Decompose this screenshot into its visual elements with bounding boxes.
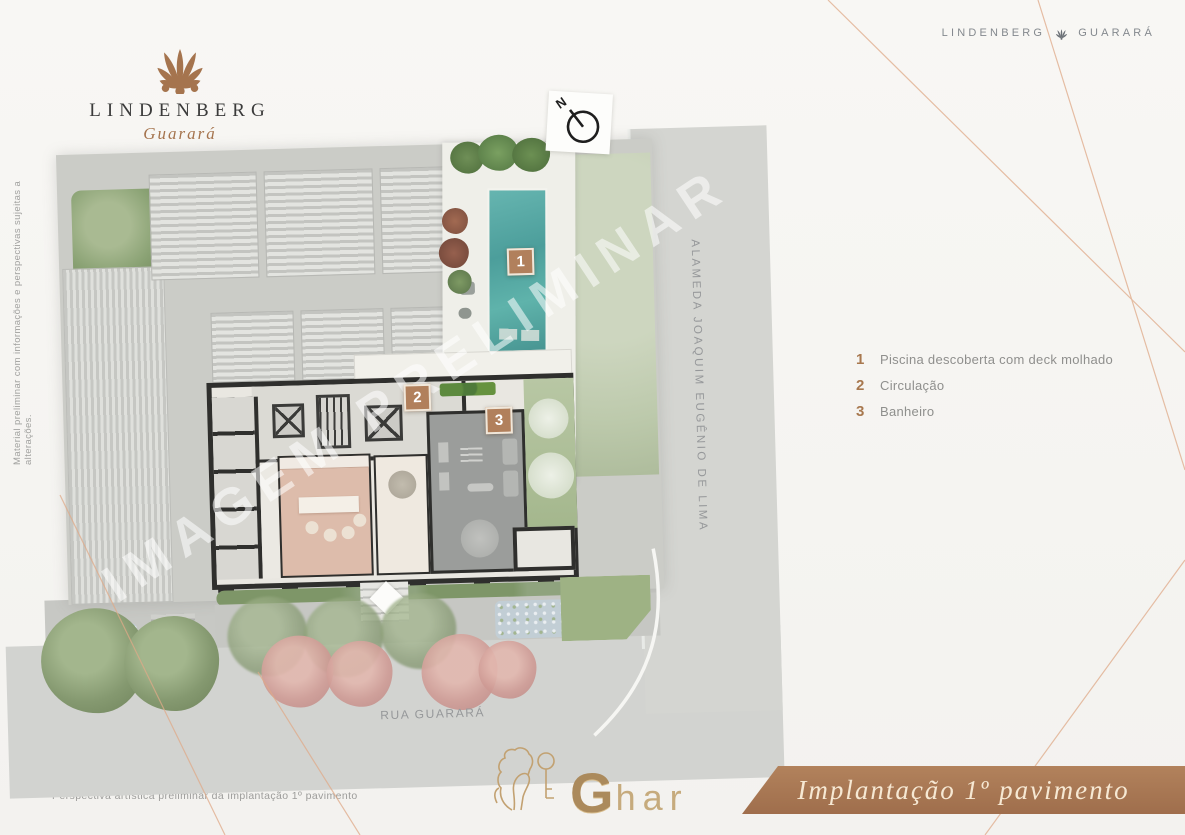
- developer-logo: LINDENBERG Guarará: [70, 36, 290, 144]
- site-plan: ALAMEDA JOAQUIM EUGÊNIO DE LIMA RUA GUAR…: [0, 77, 785, 798]
- title-banner: Implantação 1º pavimento: [742, 766, 1185, 814]
- palmette-icon: [147, 36, 213, 94]
- chair: [353, 514, 366, 527]
- service-room-bottom-right: [513, 526, 576, 572]
- slat-texture-strip: [742, 812, 1185, 835]
- legend-number: 1: [856, 351, 880, 368]
- plan-marker-2-circulacao: 2: [404, 384, 432, 412]
- legend-number: 3: [856, 403, 880, 420]
- chair: [305, 521, 318, 534]
- ghar-letters-har: har: [616, 778, 689, 818]
- treadmill: [503, 470, 519, 496]
- pergola-segment: [210, 311, 295, 383]
- lounge-room: [373, 454, 430, 575]
- pale-tree: [527, 452, 574, 499]
- logo-title: LINDENBERG: [70, 100, 290, 122]
- dining-table: [299, 496, 359, 514]
- chair: [341, 526, 354, 539]
- chair: [324, 528, 337, 541]
- banner-title: Implantação 1º pavimento: [797, 775, 1129, 806]
- header-brand-line: LINDENBERG GUARARÁ: [942, 26, 1155, 40]
- ghar-logo: G har: [488, 744, 689, 818]
- pergola-segment: [264, 168, 375, 277]
- gym-round-rug: [460, 519, 499, 558]
- round-rug: [388, 470, 417, 499]
- pale-tree: [528, 398, 569, 439]
- legend-label: Banheiro: [880, 404, 934, 419]
- brand-right: GUARARÁ: [1078, 27, 1155, 39]
- curb-corner-curve: [581, 526, 753, 776]
- treadmill: [502, 438, 518, 464]
- legend-label: Circulação: [880, 378, 944, 393]
- ghar-letter-g: G: [570, 768, 614, 818]
- legend-label: Piscina descoberta com deck molhado: [880, 352, 1113, 367]
- plan-legend: 1 Piscina descoberta com deck molhado 2 …: [856, 351, 1113, 429]
- plan-marker-1-piscina: 1: [507, 248, 535, 276]
- legend-item-circulacao: 2 Circulação: [856, 377, 1113, 394]
- brochure-page: ALAMEDA JOAQUIM EUGÊNIO DE LIMA RUA GUAR…: [0, 0, 1185, 835]
- brand-left: LINDENBERG: [942, 27, 1046, 39]
- pergola-segment: [149, 172, 260, 281]
- lion-key-icon: [488, 744, 568, 818]
- legend-item-piscina: 1 Piscina descoberta com deck molhado: [856, 351, 1113, 368]
- north-arrow: N: [546, 91, 613, 155]
- palmette-icon-small: [1054, 26, 1069, 40]
- gym-weights: [467, 483, 493, 492]
- gym-bench: [439, 472, 449, 490]
- gym-bench: [438, 442, 449, 462]
- legend-number: 2: [856, 377, 880, 394]
- legend-item-banheiro: 3 Banheiro: [856, 403, 1113, 420]
- logo-subtitle: Guarará: [70, 124, 290, 144]
- plan-marker-3-banheiro: 3: [485, 407, 513, 435]
- internal-garden-strip: [523, 378, 577, 529]
- flowerbed: [495, 599, 570, 639]
- gym-rack: [460, 447, 482, 462]
